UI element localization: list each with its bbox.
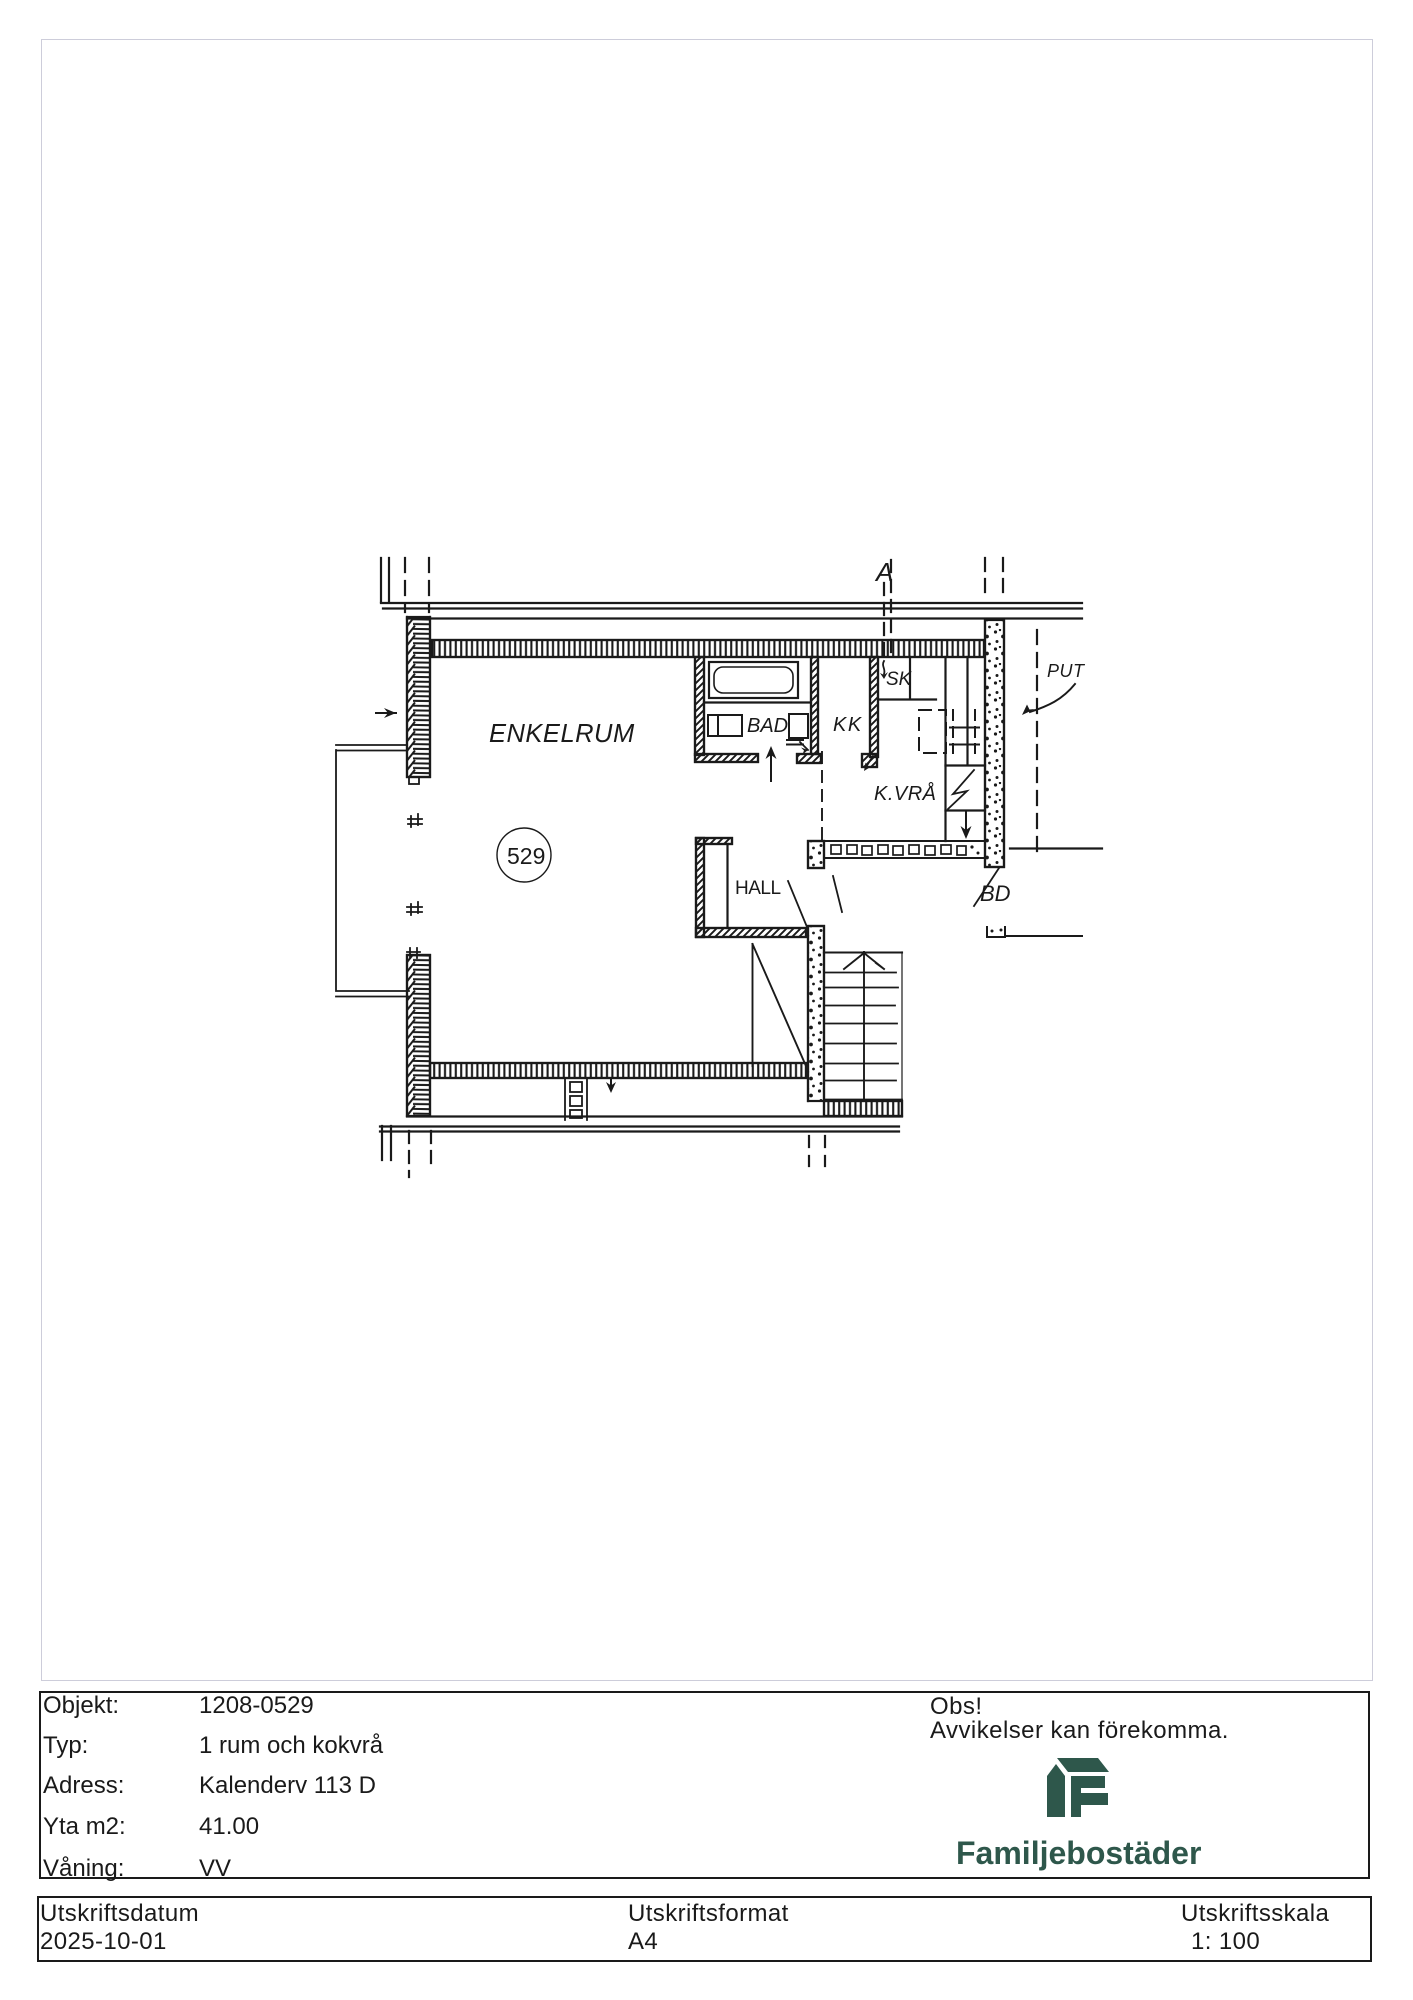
svg-text:529: 529 bbox=[507, 843, 545, 869]
svg-text:BAD: BAD bbox=[747, 715, 788, 737]
svg-text:K.VRÅ: K.VRÅ bbox=[874, 782, 937, 805]
svg-text:ENKELRUM: ENKELRUM bbox=[489, 720, 635, 748]
svg-text:PUT: PUT bbox=[1047, 661, 1086, 681]
svg-text:KK: KK bbox=[833, 714, 863, 736]
svg-text:SK: SK bbox=[886, 669, 913, 690]
svg-text:BD: BD bbox=[980, 881, 1011, 906]
svg-text:HALL: HALL bbox=[735, 878, 781, 899]
